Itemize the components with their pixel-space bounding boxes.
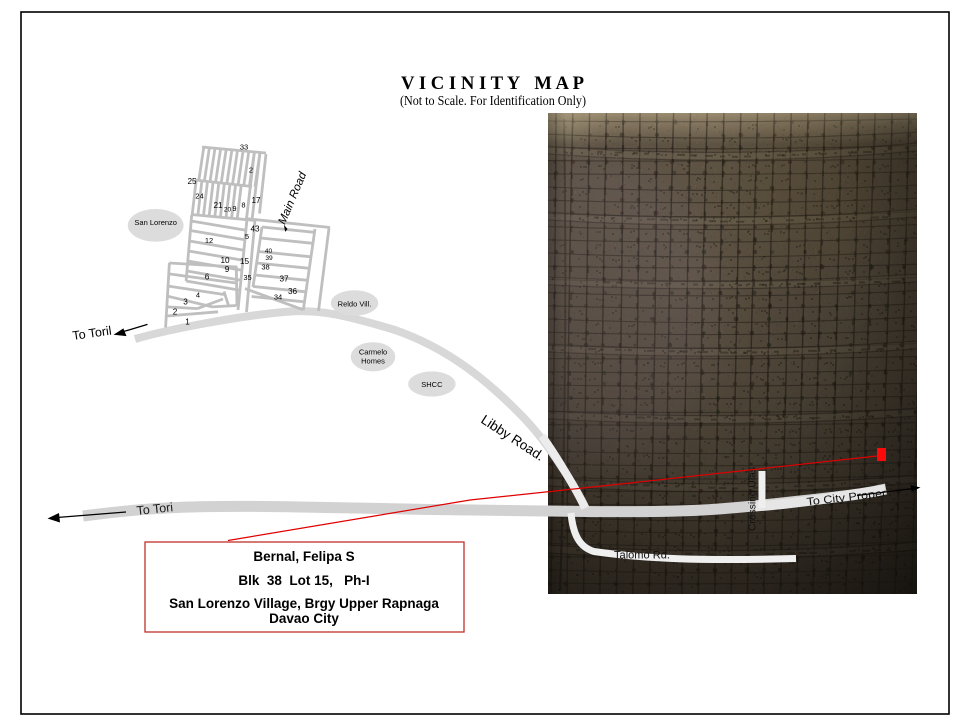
svg-text:9: 9 (225, 265, 230, 274)
svg-text:3: 3 (183, 297, 188, 306)
svg-text:25: 25 (187, 177, 197, 186)
svg-text:Talomo Rd.: Talomo Rd. (614, 550, 670, 562)
svg-text:V I C I N I T Y M A P: V I C I N I T Y M A P (401, 73, 584, 94)
svg-text:12: 12 (205, 236, 213, 245)
svg-text:Carmelo: Carmelo (359, 348, 387, 357)
svg-text:(Not to Scale. For Identificat: (Not to Scale. For Identification Only) (400, 93, 586, 108)
svg-text:4: 4 (196, 291, 200, 300)
svg-text:Blk 38 Lot 15, Ph-I: Blk 38 Lot 15, Ph-I (238, 573, 369, 588)
svg-text:Bernal, Felipa S: Bernal, Felipa S (253, 549, 354, 564)
svg-text:20: 20 (224, 206, 232, 213)
svg-text:36: 36 (288, 287, 298, 296)
svg-text:9: 9 (232, 204, 236, 213)
svg-text:40: 40 (265, 248, 273, 255)
svg-text:17: 17 (251, 196, 261, 205)
svg-text:37: 37 (279, 274, 289, 283)
svg-text:2: 2 (173, 307, 178, 316)
svg-text:34: 34 (274, 293, 282, 302)
svg-text:43: 43 (250, 224, 260, 233)
svg-text:Davao City: Davao City (269, 611, 339, 626)
svg-text:1: 1 (185, 317, 190, 326)
svg-text:24: 24 (195, 192, 203, 201)
svg-text:Crossing Ulas: Crossing Ulas (747, 467, 759, 531)
svg-text:5: 5 (245, 232, 249, 241)
svg-text:San Lorenzo: San Lorenzo (134, 218, 177, 227)
svg-text:2: 2 (249, 166, 253, 175)
svg-text:Reldo Vill.: Reldo Vill. (338, 300, 372, 309)
svg-text:15: 15 (240, 257, 250, 266)
svg-text:San Lorenzo Village, Brgy Uppe: San Lorenzo Village, Brgy Upper Rapnaga (169, 596, 439, 611)
svg-text:Homes: Homes (361, 357, 385, 366)
svg-text:10: 10 (220, 256, 230, 265)
svg-text:38: 38 (261, 263, 269, 272)
svg-text:39: 39 (265, 255, 273, 262)
svg-text:6: 6 (205, 272, 210, 281)
svg-text:8: 8 (241, 201, 245, 210)
svg-text:35: 35 (243, 273, 251, 282)
svg-text:SHCC: SHCC (421, 380, 443, 389)
svg-text:33: 33 (240, 143, 248, 152)
svg-text:21: 21 (213, 201, 223, 210)
